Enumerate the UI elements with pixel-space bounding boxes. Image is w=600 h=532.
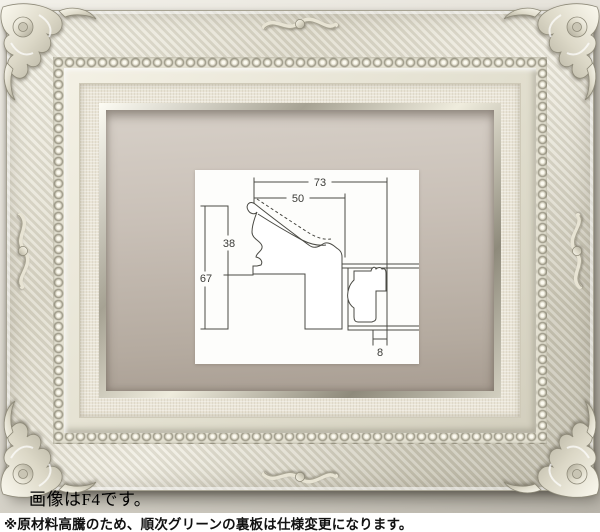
notice-text: ※原材料高騰のため、順次グリーンの裏板は仕様変更になります。 [4,513,413,532]
frame-cove: 73 50 67 38 8 [64,68,536,433]
edge-flourish-icon [567,209,589,293]
frame-fillet: 73 50 67 38 8 [99,103,501,398]
corner-flourish-icon [501,3,600,103]
product-photo: 73 50 67 38 8 画像はF [0,0,600,513]
dim-label-face-width: 50 [292,193,304,205]
dim-label-total-height: 67 [200,273,212,285]
edge-flourish-icon [258,14,342,36]
dim-label-lip-width: 8 [377,347,383,359]
edge-flourish-icon [258,465,342,487]
cross-section-diagram: 73 50 67 38 8 [195,170,419,364]
dim-67-lines [201,206,228,329]
corner-flourish-icon [0,398,99,498]
moulding-profile [247,203,342,329]
frame-window: 73 50 67 38 8 [106,110,494,391]
liner-profile [348,267,386,322]
corner-flourish-icon [501,398,600,498]
picture-frame: 73 50 67 38 8 [6,10,594,491]
frame-liner: 73 50 67 38 8 [79,83,521,418]
dim-label-total-width: 73 [314,177,326,189]
cross-section-drawing: 73 50 67 38 8 [195,170,419,364]
corner-flourish-icon [0,3,99,103]
notice-bar: ※原材料高騰のため、順次グリーンの裏板は仕様変更になります。 [0,513,600,532]
dim-label-face-height: 38 [223,238,235,250]
frame-bead-trim: 73 50 67 38 8 [53,57,547,444]
edge-flourish-icon [11,209,33,293]
photo-caption: 画像はF4です。 [29,485,151,510]
product-page: 73 50 67 38 8 画像はF [0,0,600,532]
dim-8-lines [373,330,387,345]
